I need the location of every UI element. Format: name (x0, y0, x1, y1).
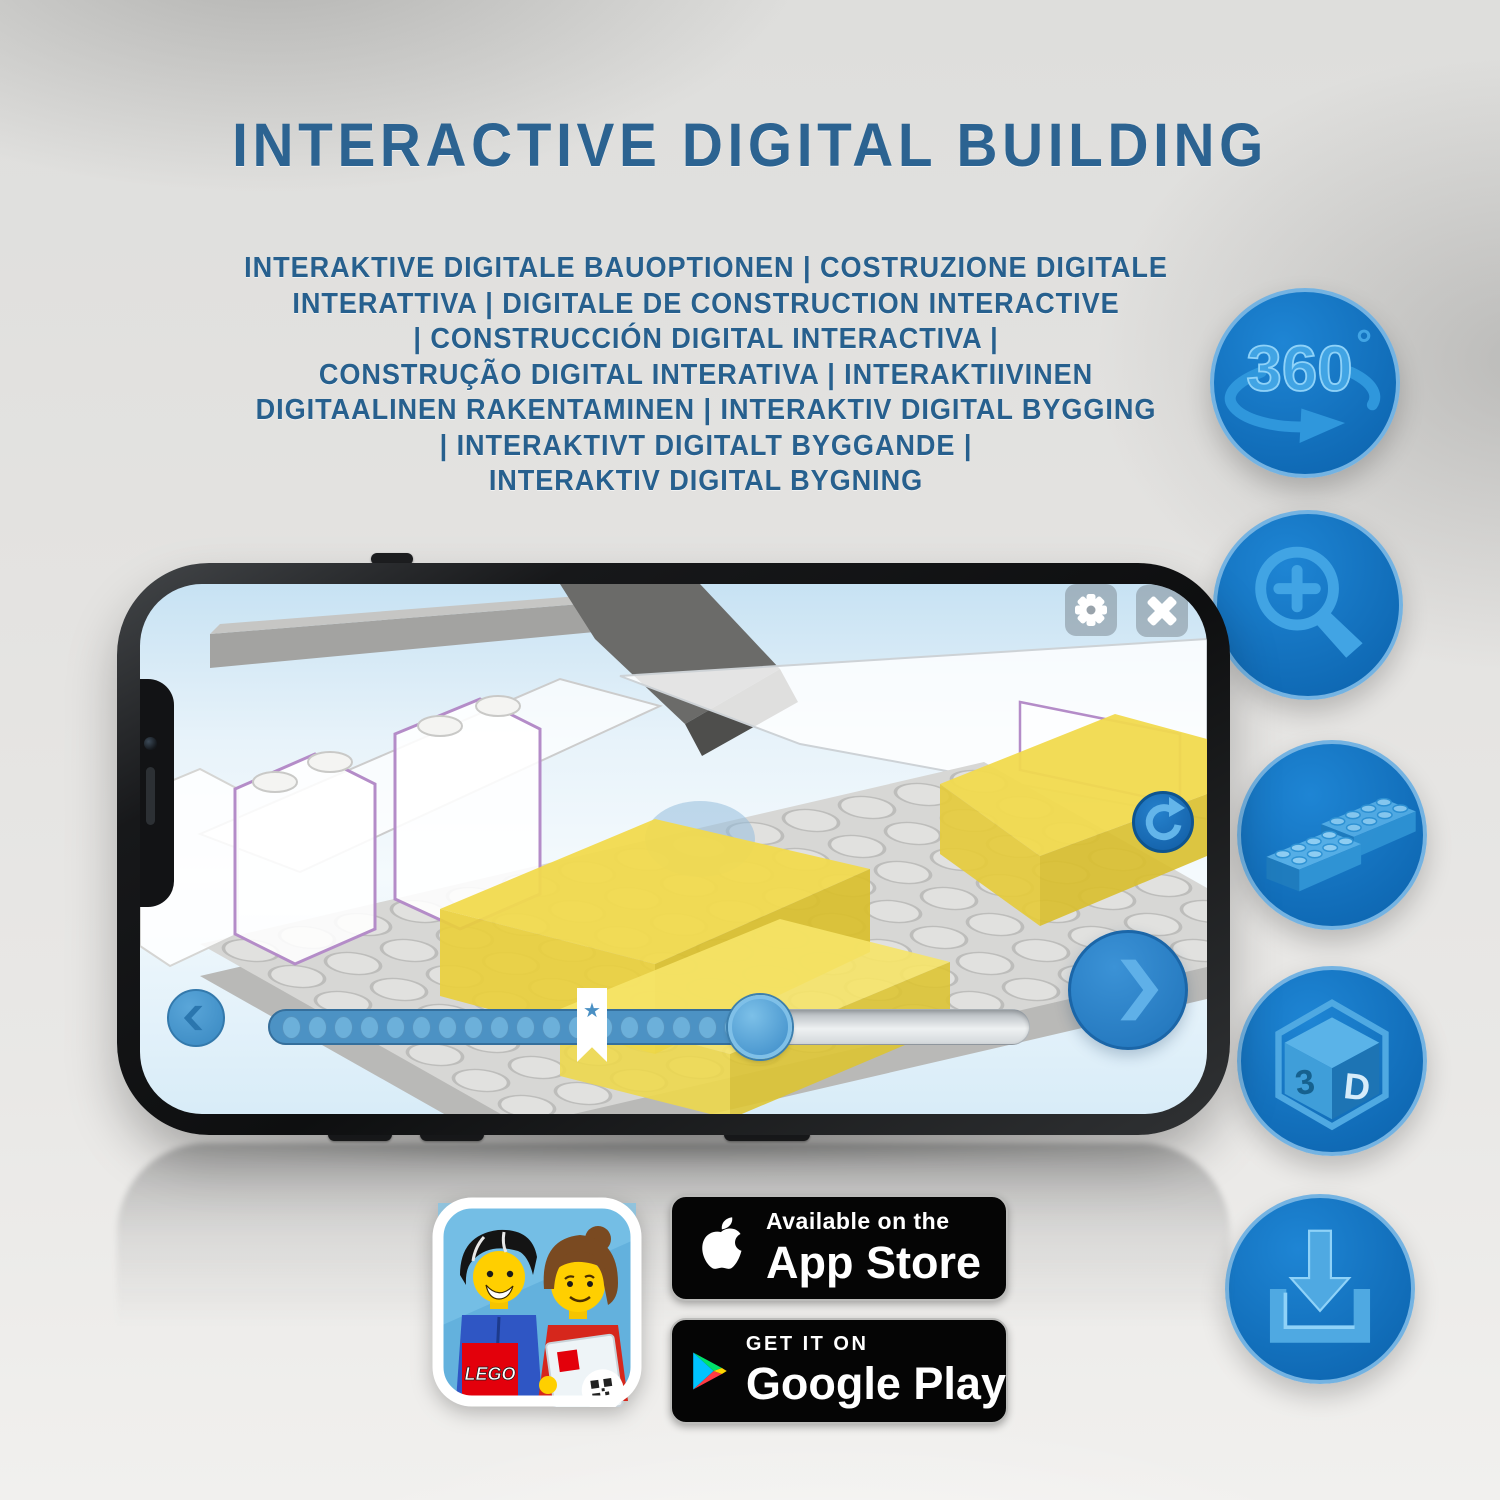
lego-logo: LEGO (464, 1364, 515, 1384)
previous-step-button[interactable] (167, 989, 225, 1047)
subtitle-line: INTERATTIVA | DIGITALE DE CONSTRUCTION I… (184, 287, 1229, 323)
poster: INTERACTIVE DIGITAL BUILDING INTERAKTIVE… (0, 0, 1500, 1500)
3d-label-d: D (1342, 1065, 1372, 1109)
subtitle-line: INTERAKTIV DIGITAL BYGNING (184, 464, 1229, 500)
close-button[interactable] (1136, 585, 1188, 637)
google-play-tagline: GET IT ON (746, 1333, 1006, 1356)
progress-dot (542, 1016, 561, 1039)
camera-dot (144, 737, 157, 750)
progress-dot (698, 1016, 717, 1039)
google-play-name: Google Play (746, 1358, 1006, 1410)
phone-notch (140, 679, 174, 907)
google-play-icon (692, 1341, 728, 1401)
rotate-icon (1132, 791, 1194, 853)
3d-view-icon: 3 D (1237, 966, 1427, 1156)
progress-dot (308, 1016, 327, 1039)
star-icon: ★ (583, 998, 601, 1022)
progress-dot (646, 1016, 665, 1039)
progress-dot (282, 1016, 301, 1039)
gear-icon (1065, 584, 1117, 636)
360-label: 360 (1246, 333, 1352, 404)
progress-dot (464, 1016, 483, 1039)
apple-icon (692, 1214, 748, 1282)
360-rotation-icon: 360 ° (1210, 288, 1400, 478)
zoom-in-icon (1213, 510, 1403, 700)
page-title: INTERACTIVE DIGITAL BUILDING (53, 110, 1448, 180)
phone-mockup: ★ (117, 563, 1230, 1135)
chevron-right-icon (1071, 933, 1185, 1047)
progress-dot (438, 1016, 457, 1039)
progress-dot (490, 1016, 509, 1039)
progress-dot (386, 1016, 405, 1039)
app-store-name: App Store (766, 1237, 981, 1289)
progress-dot (334, 1016, 353, 1039)
progress-dot (412, 1016, 431, 1039)
app-store-tagline: Available on the (766, 1208, 981, 1235)
speaker-slot (146, 767, 155, 825)
close-icon (1136, 585, 1188, 637)
lego-app-icon[interactable]: LEGO (432, 1197, 642, 1407)
next-step-button[interactable] (1068, 930, 1188, 1050)
app-store-badge[interactable]: Available on the App Store (670, 1195, 1008, 1301)
progress-dot (672, 1016, 691, 1039)
subtitle-line: DIGITAALINEN RAKENTAMINEN | INTERAKTIV D… (184, 393, 1229, 429)
progress-thumb[interactable] (728, 995, 792, 1059)
progress-fill (268, 1009, 762, 1045)
subtitle-line: CONSTRUÇÃO DIGITAL INTERATIVA | INTERAKT… (184, 358, 1229, 394)
phone-screen: ★ (140, 584, 1207, 1114)
progress-dot (360, 1016, 379, 1039)
subtitle-line: | CONSTRUCCIÓN DIGITAL INTERACTIVA | (184, 322, 1229, 358)
progress-dot (516, 1016, 535, 1039)
google-play-badge[interactable]: GET IT ON Google Play (670, 1318, 1008, 1424)
chevron-left-icon (169, 991, 223, 1045)
lego-brick-icon (1237, 740, 1427, 930)
progress-dot (620, 1016, 639, 1039)
rotate-view-button[interactable] (1132, 791, 1194, 853)
download-icon (1225, 1194, 1415, 1384)
subtitle-line: INTERAKTIVE DIGITALE BAUOPTIONEN | COSTR… (184, 251, 1229, 287)
subtitle-block: INTERAKTIVE DIGITALE BAUOPTIONEN | COSTR… (184, 251, 1229, 500)
settings-button[interactable] (1065, 584, 1117, 636)
degree-symbol: ° (1356, 323, 1372, 367)
subtitle-line: | INTERAKTIVT DIGITALT BYGGANDE | (184, 429, 1229, 465)
